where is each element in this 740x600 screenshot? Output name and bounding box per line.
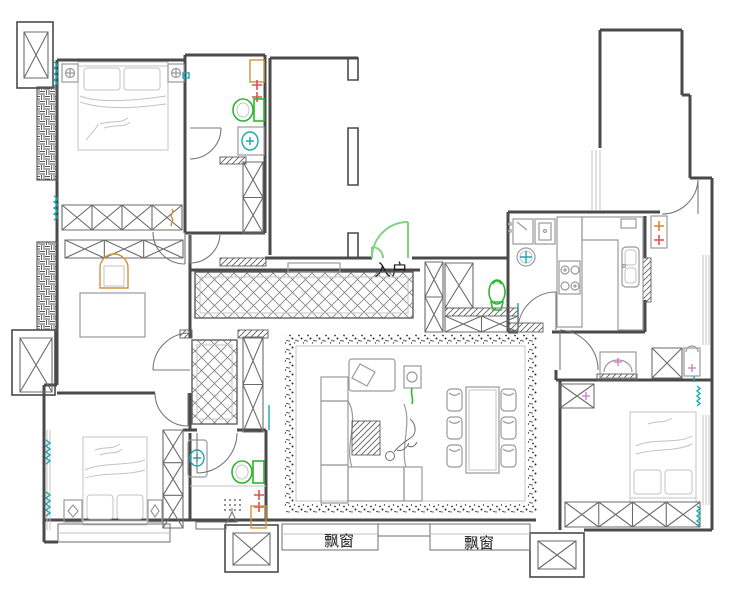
- bay-window-pier: [378, 524, 430, 536]
- foyer: [425, 262, 518, 332]
- column-bottom-right: [530, 533, 584, 577]
- bay-window-label-right: 飘窗: [464, 534, 494, 552]
- shoe-cabinet-tall: [425, 262, 443, 332]
- cabinet-appliance: [535, 219, 555, 244]
- balcony-cabinet: [652, 348, 682, 378]
- bay-window-living-left: 飘窗: [282, 524, 378, 550]
- bedroom-right-wardrobe: [565, 502, 700, 527]
- master-bedroom-door: [155, 393, 188, 426]
- nightstand-left: [62, 64, 78, 82]
- laundry-basin: [684, 346, 700, 376]
- foyer-plant: [489, 280, 505, 310]
- hanging-clothes: [171, 209, 173, 226]
- refrigerator: [509, 219, 533, 244]
- vertical-storage-cabinet: [192, 340, 237, 424]
- floor-plan-canvas: 入户: [0, 0, 740, 600]
- counters: [557, 217, 643, 330]
- bay-window-left-bedroom: [58, 524, 170, 542]
- cabinet: [250, 60, 264, 82]
- duct-shaft-2: [243, 337, 263, 432]
- stove: [559, 261, 580, 294]
- curtain: [697, 386, 700, 406]
- column-top-left: [17, 22, 53, 88]
- shoe-cabinet: [445, 263, 473, 308]
- study-wardrobe: [65, 240, 183, 258]
- bedroom-top-left: [54, 62, 185, 264]
- cabinet-mark: [582, 392, 590, 400]
- water-heater-cabinet: [651, 216, 667, 248]
- side-table-plant: [404, 366, 421, 404]
- bay-window-label-left: 飘窗: [324, 532, 354, 550]
- master-wardrobe: [163, 430, 183, 528]
- master-bed: [83, 437, 147, 525]
- switch-marks: [269, 303, 518, 430]
- wash-basin: [238, 127, 264, 155]
- bay-window-living-right: 飘窗: [430, 524, 530, 552]
- person-lying: [386, 419, 418, 461]
- bedroom-right: [560, 330, 700, 527]
- dining-chairs: [447, 389, 516, 467]
- washing-machine: [517, 248, 535, 266]
- kitchen: [509, 217, 643, 330]
- kitchen-balcony-window: [643, 258, 651, 302]
- toilet: [232, 461, 264, 483]
- single-bed: [630, 412, 696, 502]
- small-window: [196, 522, 226, 529]
- toilet: [233, 99, 264, 121]
- study-door: [153, 333, 190, 370]
- bath-door-upper: [190, 128, 221, 159]
- wardrobe-row: [62, 205, 182, 230]
- kitchen-sink: [622, 247, 639, 287]
- floor-plan-drawing: 入户: [0, 0, 740, 600]
- bedroom-right-door: [560, 330, 598, 370]
- master-bath: [188, 433, 266, 529]
- duct-shaft: [243, 162, 263, 233]
- lobby-wall-piers: [348, 58, 358, 258]
- entry-door: [372, 222, 408, 258]
- armchair: [349, 359, 395, 391]
- desk: [80, 293, 145, 337]
- balcony-door: [662, 180, 698, 214]
- column-mid-left: [12, 330, 55, 395]
- bath-door-lower: [190, 233, 220, 263]
- long-storage-cabinet: [195, 272, 413, 318]
- rug: [352, 421, 380, 455]
- column-bottom-center: [225, 525, 278, 572]
- study: [65, 240, 190, 370]
- towel-rack-icon: [254, 490, 264, 512]
- bedroom1-door: [153, 232, 185, 264]
- nightstand-right: [168, 64, 184, 82]
- desk-chair: [100, 254, 128, 288]
- dining-table: [466, 387, 499, 473]
- window-top-right: [592, 150, 600, 210]
- double-bed: [78, 62, 168, 150]
- balcony: [651, 180, 700, 382]
- living-dining-room: [289, 339, 532, 508]
